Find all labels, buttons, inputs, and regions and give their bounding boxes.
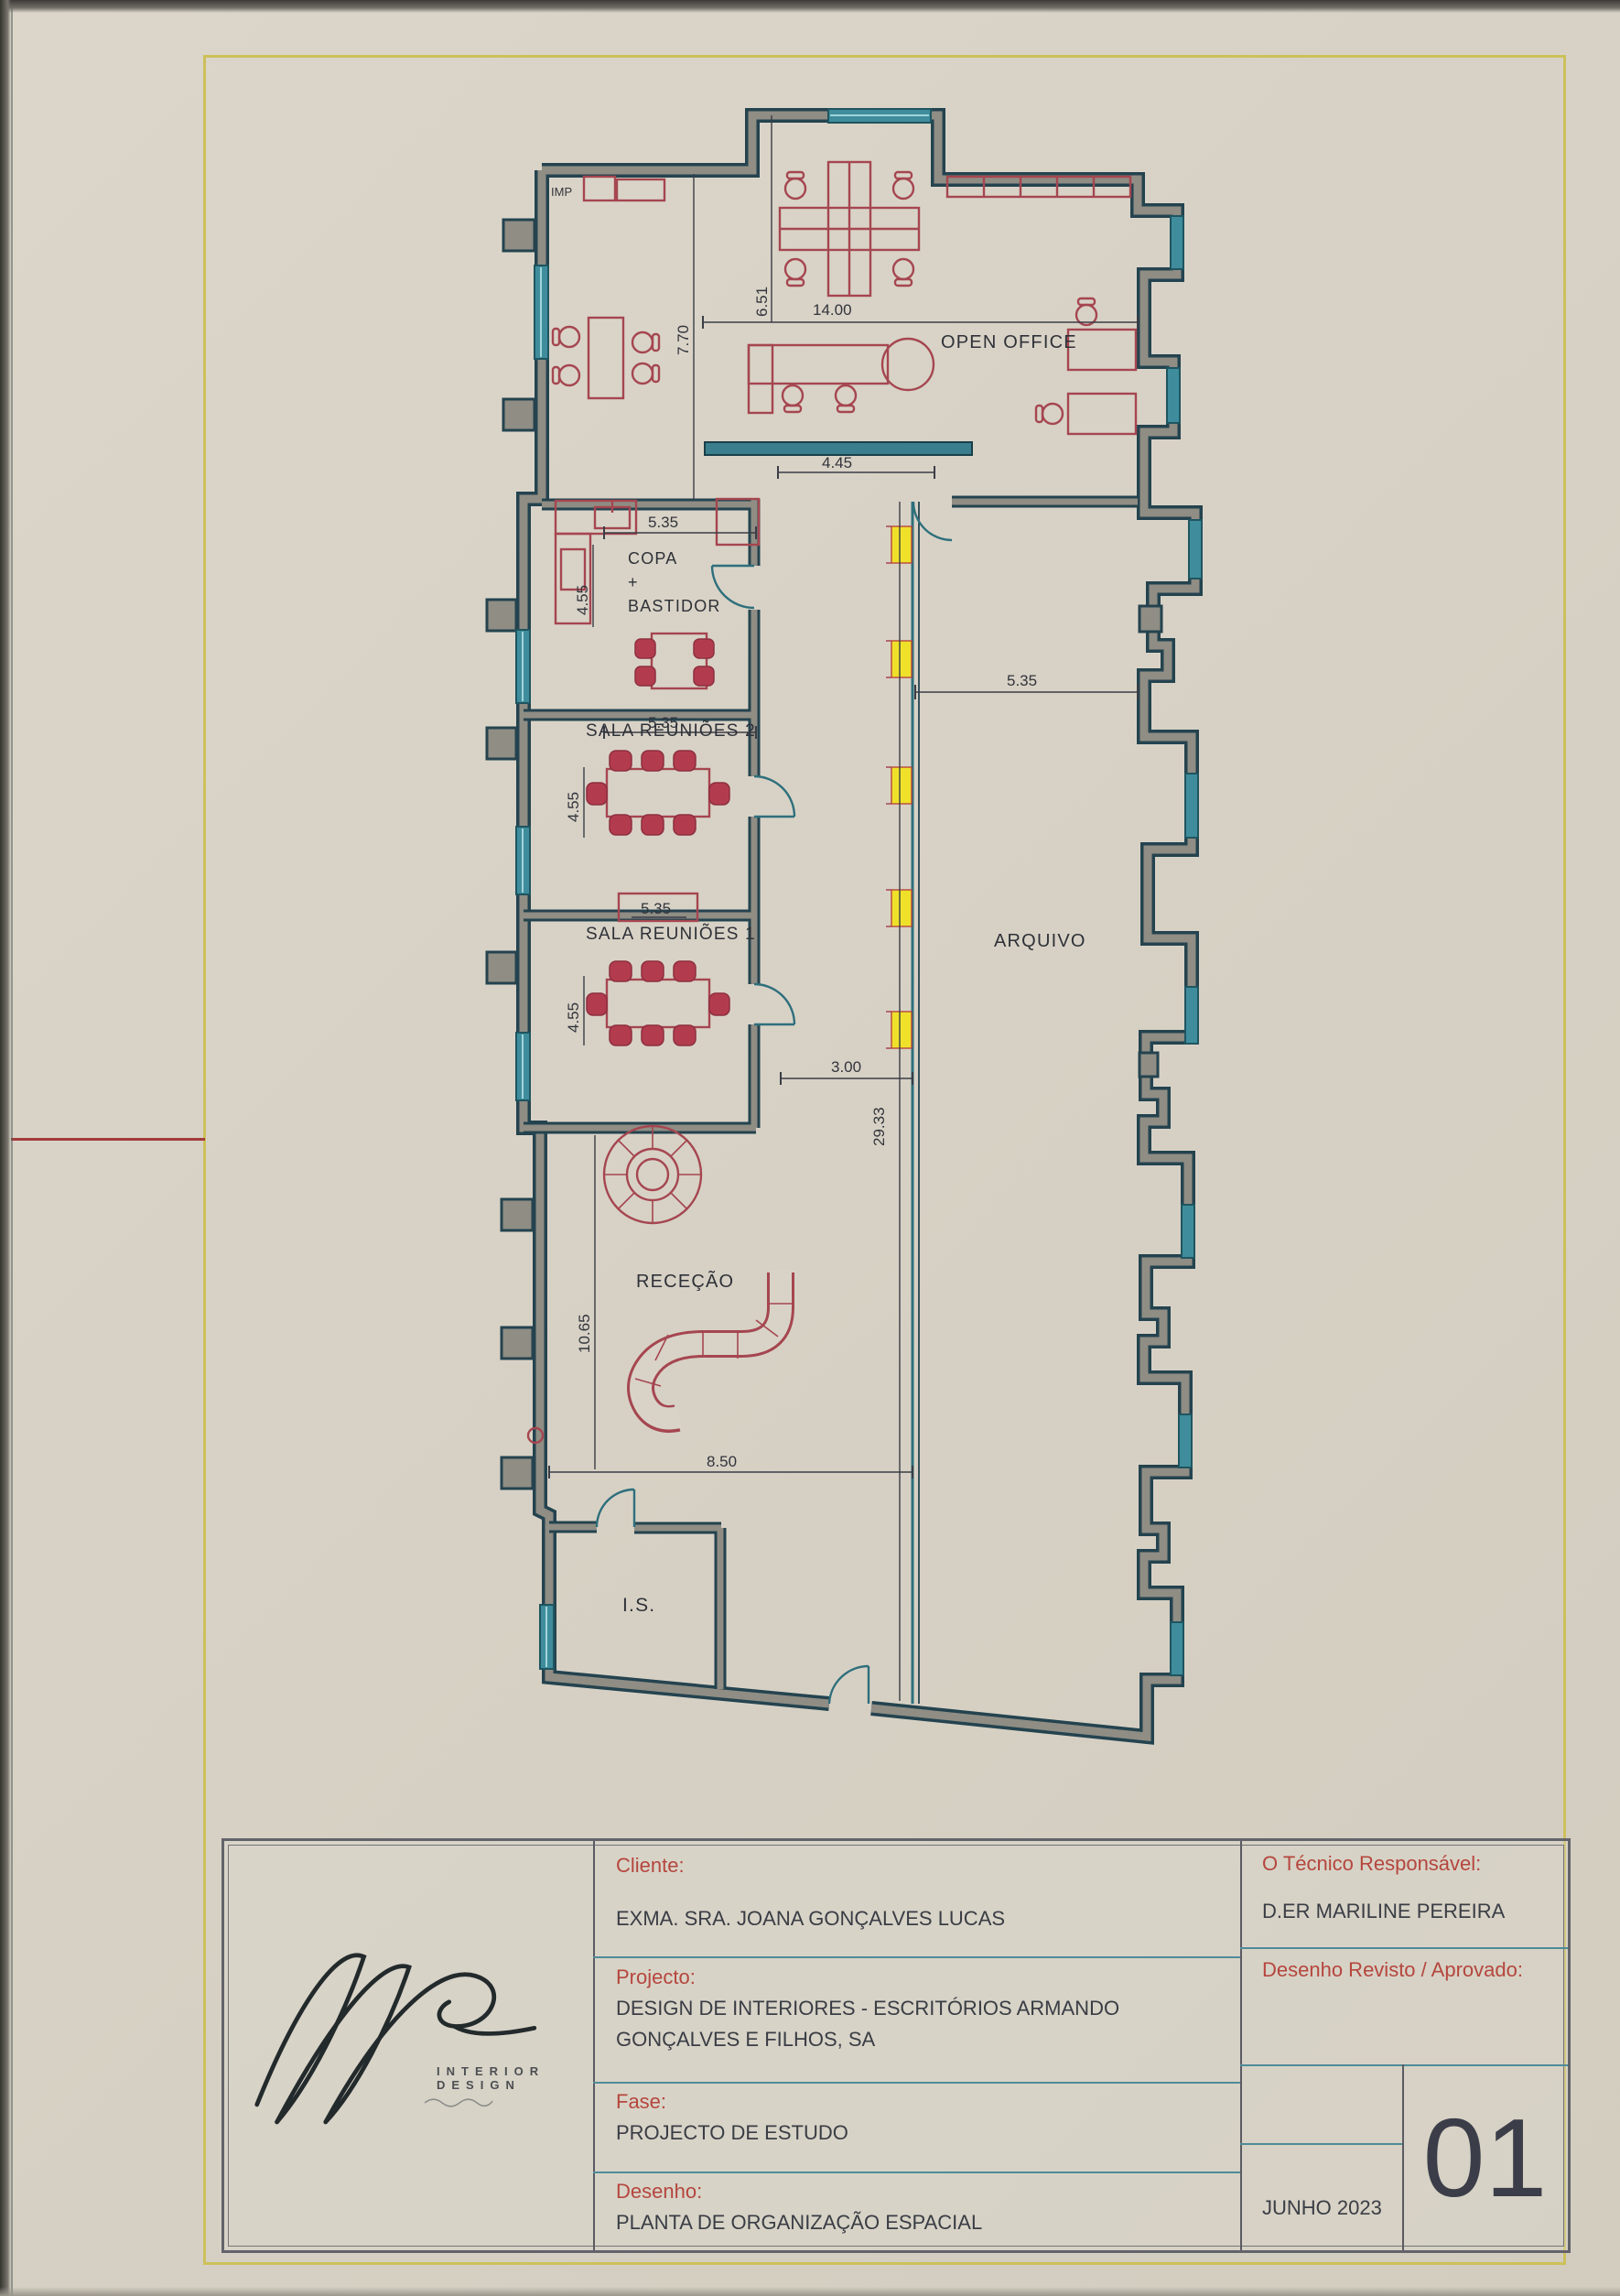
dim-corridor-w: 3.00 — [831, 1058, 861, 1076]
sala2-meeting-table — [587, 751, 729, 835]
open-office-left-desk-group — [553, 318, 659, 398]
title-block-divider-2 — [1240, 1841, 1242, 2250]
projecto-value-line2: GONÇALVES E FILHOS, SA — [616, 2028, 875, 2052]
dim-bottom-w: 8.50 — [707, 1453, 737, 1470]
tecnico-label: O Técnico Responsável: — [1262, 1852, 1481, 1876]
room-label-sala-1: SALA REUNIÕES 1 — [586, 924, 756, 944]
title-block: INTERIOR DESIGN Cliente: EXMA. SRA. JOAN… — [221, 1838, 1571, 2253]
rececao-counter — [635, 1271, 794, 1419]
row-line — [593, 2082, 1240, 2084]
building-interior-walls — [524, 499, 1138, 1689]
projecto-value-line1: DESIGN DE INTERIORES - ESCRITÓRIOS ARMAN… — [616, 1997, 1119, 2020]
photo-edge-top — [0, 0, 1620, 13]
room-label-open-office: OPEN OFFICE — [941, 332, 1077, 352]
sala1-meeting-table — [587, 961, 729, 1045]
cliente-value: EXMA. SRA. JOANA GONÇALVES LUCAS — [616, 1907, 1005, 1931]
photo-edge-bottom — [0, 2287, 1620, 2296]
wall-pilasters — [487, 220, 1161, 1489]
printer-station — [584, 177, 664, 200]
room-label-rececao: RECEÇÃO — [636, 1270, 734, 1292]
open-office-manager-desk — [749, 339, 934, 413]
room-label-is: I.S. — [622, 1595, 655, 1616]
room-label-copa-1: COPA — [628, 549, 677, 568]
dim-corridor-len: 29.33 — [870, 1107, 888, 1146]
cliente-label: Cliente: — [616, 1854, 685, 1878]
desenho-value: PLANTA DE ORGANIZAÇÃO ESPACIAL — [616, 2211, 982, 2235]
scanned-floor-plan-sheet: IMP OPEN OFFICE COPA + BASTIDOR SALA REU… — [0, 0, 1620, 2296]
revisto-label: Desenho Revisto / Aprovado: — [1262, 1958, 1523, 1982]
dim-arquivo-w: 5.35 — [1007, 672, 1037, 689]
signature-logo — [235, 1896, 583, 2171]
corridor-partition-lines — [913, 502, 919, 1704]
dim-sala1-w: 5.35 — [641, 900, 671, 917]
desenho-label: Desenho: — [616, 2180, 702, 2204]
room-label-copa-2: + — [628, 573, 639, 591]
open-office-cross-desk — [780, 162, 919, 296]
dim-sala2-h: 4.55 — [565, 792, 582, 822]
tecnico-value: D.ER MARILINE PEREIRA — [1262, 1900, 1505, 1923]
title-block-divider-1 — [593, 1841, 595, 2250]
open-office-partition-screen — [705, 442, 972, 455]
photo-edge-left — [0, 0, 11, 2296]
projecto-label: Projecto: — [616, 1966, 696, 1989]
label-imp: IMP — [551, 185, 572, 199]
dimension-lines — [549, 115, 1138, 1701]
row-line — [1240, 2143, 1402, 2145]
sheet-number: 01 — [1402, 2064, 1568, 2250]
dim-partition: 4.45 — [822, 454, 852, 471]
room-label-copa-3: BASTIDOR — [628, 597, 721, 615]
dim-sala1-h: 4.55 — [565, 1002, 582, 1033]
row-line — [593, 1956, 1240, 1958]
logo-subtitle: INTERIOR DESIGN — [437, 2064, 593, 2092]
copa-table-chairs — [635, 634, 714, 688]
room-label-arquivo: ARQUIVO — [994, 931, 1086, 951]
open-office-right-desks — [1036, 298, 1136, 434]
window-glazing — [516, 109, 1202, 1675]
row-line — [593, 2171, 1240, 2173]
dim-copa-h: 4.55 — [574, 585, 591, 615]
date-value: JUNHO 2023 — [1262, 2196, 1382, 2220]
logo-cell: INTERIOR DESIGN — [224, 1841, 593, 2250]
dim-copa-w: 5.35 — [648, 514, 678, 531]
dim-top-height: 6.51 — [753, 287, 771, 317]
fase-label: Fase: — [616, 2090, 666, 2114]
fase-value: PROJECTO DE ESTUDO — [616, 2121, 848, 2145]
corridor-light-fixtures — [886, 526, 912, 1048]
dim-left-height: 7.70 — [675, 325, 692, 355]
row-line — [1240, 1947, 1568, 1949]
dim-rececao-h: 10.65 — [576, 1314, 593, 1353]
dim-sala2-w: 5.35 — [648, 714, 678, 731]
rececao-round-sofa — [604, 1126, 701, 1223]
dim-top-width: 14.00 — [813, 301, 852, 319]
